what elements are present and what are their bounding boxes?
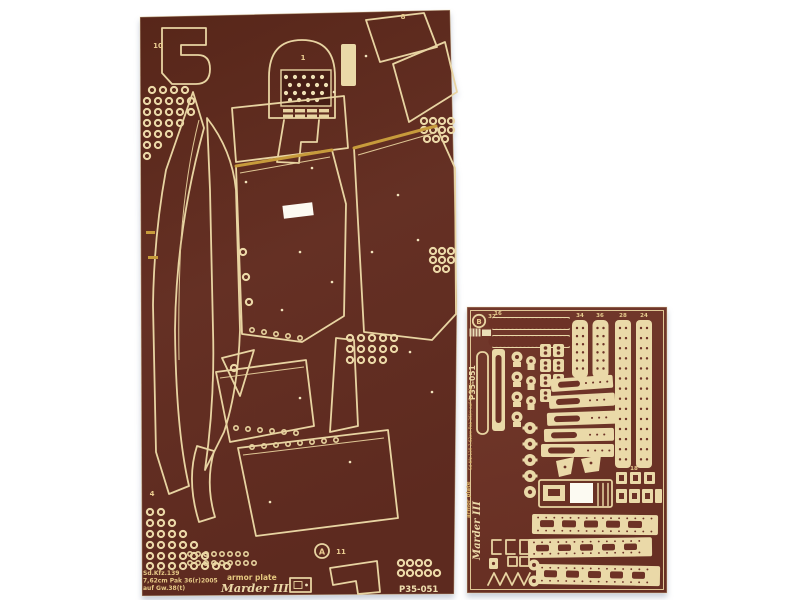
bottom-slotted-strips (528, 514, 660, 586)
footer-vehicle-line3: auf Gw.38(t) (143, 585, 185, 592)
part-number-18: 18 (630, 466, 638, 472)
slotted-strip-fan (541, 375, 617, 457)
part-number-1: 1 (301, 54, 306, 62)
footer-vehicle-name: Marder III (220, 581, 289, 595)
part-number-34: 34 (576, 313, 584, 319)
part-number-28: 28 (619, 313, 627, 319)
brand-logo-letter: B (476, 318, 481, 326)
footer-year: 2005 (201, 578, 218, 585)
footer-vehicle-line2: 7,62cm Pak 36(r) (143, 578, 201, 585)
footer-set-code: P35-051 (399, 585, 438, 595)
left-etched-sheet: 10 1 (140, 10, 457, 596)
footer-vehicle-line1: Sd.Kfz.139 (143, 570, 179, 577)
part-number-11: 11 (336, 548, 346, 556)
part-number-36: 36 (596, 313, 604, 319)
part-number-24: 24 (640, 313, 648, 319)
stamp-letter-a: A (319, 548, 326, 557)
right-etched-sheet: B 32 16 34 36 28 24 (466, 307, 667, 593)
part-number-16: 16 (494, 311, 502, 317)
part-number-8: 8 (401, 13, 406, 21)
side-vehicle-line: Sd.Kfz.139 7,62cm Pak 36(r) auf Gw.38(t) (468, 383, 473, 470)
etch-label-block2 (482, 330, 491, 337)
side-vehicle-name: Marder III (472, 501, 483, 561)
product-photo: 10 1 (0, 0, 800, 600)
part-number-10: 10 (153, 42, 163, 50)
part-number-4: 4 (150, 490, 155, 498)
blank-etch-bar (341, 44, 356, 86)
etched-sheets-photo: 10 1 (0, 0, 800, 600)
